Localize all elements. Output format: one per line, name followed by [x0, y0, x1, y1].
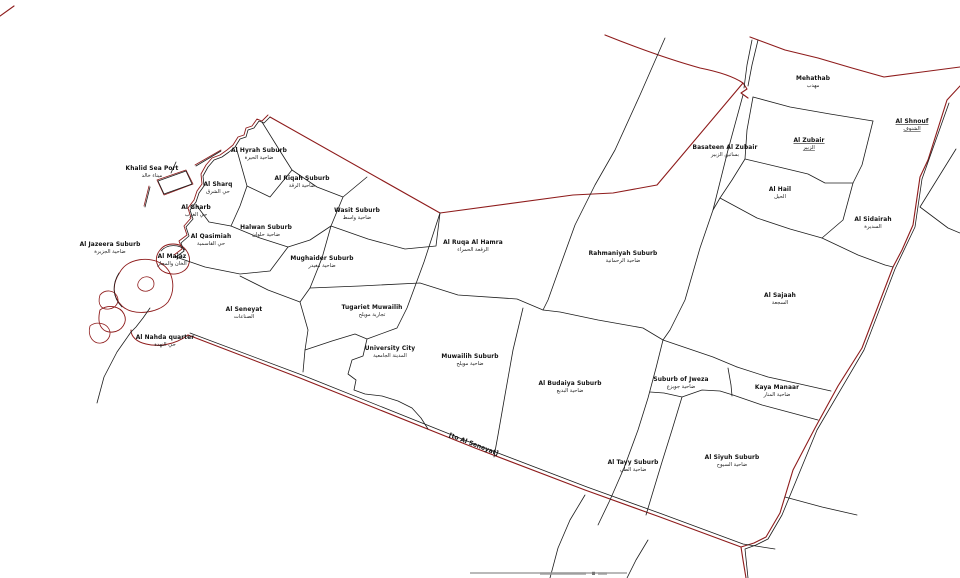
district-label-al-budaiya-suburb: Al Budaiya Suburbضاحية البديع	[538, 381, 601, 394]
district-label-al-shnouf: Al Shnoufالشنوف	[896, 119, 929, 132]
boundary-black-path	[822, 238, 893, 267]
district-label-khalid-sea-port: Khalid Sea Portميناء خالد	[126, 166, 179, 179]
district-label-tugariet-muwailih: Tugariet Muwailihتجارية مويلح	[342, 305, 403, 318]
sharjah-districts-map: Khalid Sea Portميناء خالدAl Hyrah Suburb…	[0, 0, 960, 578]
district-label-al-zubair: Al Zubairالزبير	[793, 138, 824, 151]
district-labels: Khalid Sea Portميناء خالدAl Hyrah Suburb…	[80, 76, 929, 473]
boundary-black-path	[262, 122, 292, 170]
boundary-black-path	[240, 276, 300, 302]
district-label-al-ruqa-al-hamra: Al Ruqa Al Hamraالرقعة الحمراء	[443, 240, 503, 253]
boundary-red-path	[270, 83, 743, 213]
boundary-black-path	[247, 170, 292, 197]
boundary-black-path	[550, 495, 585, 578]
boundary-red-path	[750, 37, 960, 77]
boundary-red-path	[89, 323, 110, 343]
map-attribution-icon	[592, 572, 595, 575]
district-label-al-nahda-quarter: Al Nahda quarterحي النهدة	[136, 335, 195, 348]
boundary-black-path	[367, 213, 440, 339]
boundary-black-path	[494, 308, 523, 457]
boundary-black-path	[682, 390, 818, 420]
map-attribution-micro-text	[540, 572, 586, 575]
district-label-al-majaz: Al Majazالخان والمجاز	[156, 254, 186, 267]
boundary-black-path	[744, 40, 752, 88]
district-label-al-gharb: Al Gharbحي الغرب	[181, 205, 211, 218]
district-label-wasit-suburb: Wasit Suburbضاحية واسط	[334, 208, 380, 221]
scale-bar	[470, 572, 627, 575]
map-canvas: Khalid Sea Portميناء خالدAl Hyrah Suburb…	[0, 0, 960, 578]
boundary-black-path	[114, 273, 122, 307]
district-label-suburb-of-jweza: Suburb of Jwezaضاحية جويزع	[653, 377, 708, 390]
district-label-halwan-suburb: Halwan Suburbضاحية حلوان	[240, 225, 292, 238]
boundary-black-path	[300, 302, 308, 372]
boundary-black-path	[145, 187, 150, 207]
district-label-al-siyuh-suburb: Al Siyuh Suburbضاحية السيوح	[705, 455, 760, 468]
district-label-university-city: University Cityالمدينة الجامعية	[365, 346, 416, 359]
district-label-al-tayy-suburb: Al Tayy Suburbضاحية الطي	[608, 460, 659, 473]
boundary-black-path	[646, 397, 682, 515]
district-label-al-qasimiah: Al Qasimiahحي القاسمية	[191, 234, 232, 247]
boundary-black-path	[231, 186, 247, 226]
district-label-al-jazeera-suburb: Al Jazeera Suburbضاحية الجزيرة	[80, 242, 141, 255]
district-label-al-hail: Al Hailالحيل	[769, 187, 791, 200]
boundary-black-path	[288, 226, 331, 247]
boundary-black-path	[663, 95, 743, 340]
boundary-black-path	[720, 198, 822, 238]
boundary-red-path	[138, 277, 154, 291]
boundary-red-path	[0, 6, 14, 16]
boundary-black-path	[753, 97, 873, 121]
boundary-black-path	[627, 540, 648, 578]
boundary-red-path	[144, 186, 149, 206]
district-label-al-sajaah: Al Sajaahالسجعة	[764, 293, 796, 306]
district-label-al-riqah-suburb: Al Riqah Suburbضاحية الرقة	[274, 176, 329, 189]
district-label-kaya-manaar: Kaya Manaarضاحية المنار	[755, 385, 799, 398]
emirate-boundary-red-lines	[0, 6, 960, 578]
district-label-basateen-al-zubair: Basateen Al Zubairبساتين الزبير	[692, 145, 757, 158]
district-label-al-sidairah: Al Sidairahالسديرة	[854, 217, 891, 230]
boundary-black-path	[748, 40, 758, 86]
boundary-red-path	[99, 307, 125, 333]
boundary-black-path	[728, 368, 732, 396]
boundary-black-path	[543, 38, 665, 310]
boundary-black-path	[745, 159, 853, 183]
boundary-red-path	[605, 35, 748, 98]
district-label-al-sharq: Al Sharqحي الشرق	[204, 182, 233, 195]
boundary-black-path	[176, 247, 288, 274]
annotation-to-al-seneyat: [to Al Seneyat]	[448, 432, 500, 457]
district-label-rahmaniyah-suburb: Rahmaniyah Suburbضاحية الرحمانية	[589, 251, 658, 264]
district-label-mehathab: Mehathabمهذب	[796, 76, 830, 89]
district-label-mughaider-suburb: Mughaider Suburbضاحية مغيدر	[290, 256, 353, 269]
boundary-black-path	[745, 103, 949, 578]
boundary-black-path	[785, 497, 857, 515]
boundary-black-path	[920, 149, 960, 233]
district-label-al-seneyat: Al Seneyatالصناعات	[226, 307, 263, 320]
boundary-black-path	[598, 340, 663, 525]
boundary-red-path	[741, 86, 960, 578]
district-label-muwailih-suburb: Muwailih Suburbضاحية مويلح	[441, 354, 498, 367]
boundary-black-path	[650, 392, 682, 397]
boundary-red-path	[114, 259, 173, 312]
